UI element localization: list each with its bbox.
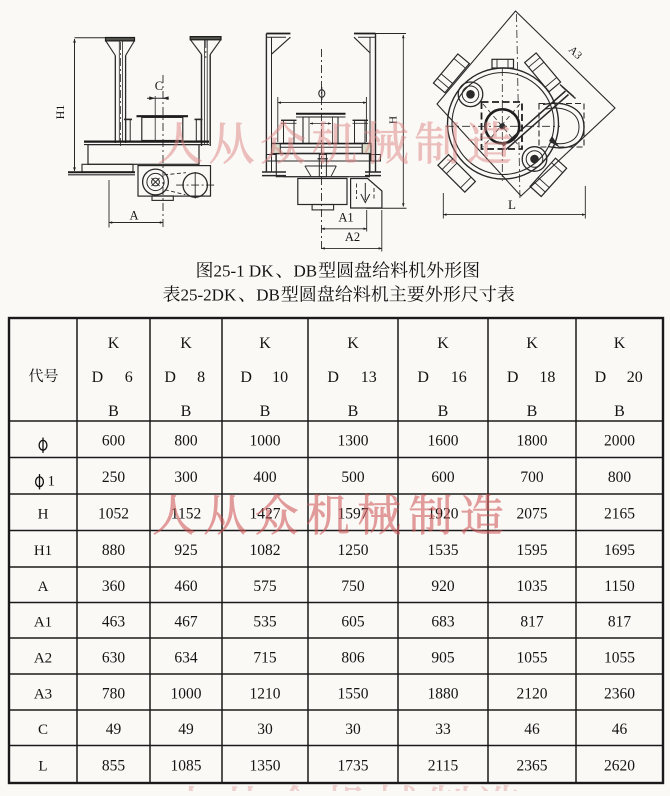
svg-text:30: 30 <box>257 721 273 738</box>
svg-text:2120: 2120 <box>517 685 548 702</box>
svg-text:750: 750 <box>341 578 365 595</box>
svg-text:13: 13 <box>361 369 377 386</box>
svg-text:46: 46 <box>612 721 628 738</box>
svg-text:B: B <box>438 403 449 420</box>
svg-text:360: 360 <box>102 578 126 595</box>
svg-text:1350: 1350 <box>250 758 281 775</box>
svg-text:806: 806 <box>341 649 365 666</box>
svg-text:2360: 2360 <box>604 685 635 702</box>
svg-text:1055: 1055 <box>604 649 635 666</box>
svg-text:1: 1 <box>48 474 56 490</box>
svg-text:250: 250 <box>102 469 126 486</box>
svg-text:1052: 1052 <box>98 506 129 523</box>
svg-text:400: 400 <box>253 469 277 486</box>
svg-text:600: 600 <box>431 469 455 486</box>
svg-text:780: 780 <box>102 685 126 702</box>
svg-text:700: 700 <box>520 469 544 486</box>
svg-text:634: 634 <box>174 649 198 666</box>
svg-text:49: 49 <box>106 721 122 738</box>
svg-text:800: 800 <box>174 433 198 450</box>
svg-text:B: B <box>348 403 359 420</box>
svg-text:1880: 1880 <box>428 685 459 702</box>
svg-text:1535: 1535 <box>428 542 459 559</box>
svg-text:1210: 1210 <box>250 685 281 702</box>
svg-text:1000: 1000 <box>250 433 281 450</box>
svg-text:575: 575 <box>253 578 277 595</box>
svg-text:1035: 1035 <box>517 578 548 595</box>
svg-text:683: 683 <box>431 614 455 631</box>
svg-text:1082: 1082 <box>250 542 281 559</box>
svg-text:16: 16 <box>451 369 467 386</box>
svg-text:467: 467 <box>174 614 198 631</box>
svg-text:6: 6 <box>125 369 133 386</box>
svg-text:880: 880 <box>102 542 126 559</box>
svg-text:D: D <box>327 369 339 386</box>
svg-text:DB: DB <box>294 262 318 281</box>
svg-text:905: 905 <box>431 649 455 666</box>
svg-text:10: 10 <box>272 369 288 386</box>
svg-text:1595: 1595 <box>517 542 548 559</box>
svg-text:L: L <box>508 197 516 212</box>
svg-text:A1: A1 <box>338 211 353 225</box>
svg-text:1000: 1000 <box>171 685 202 702</box>
svg-text:DB: DB <box>256 286 280 305</box>
svg-text:600: 600 <box>102 433 126 450</box>
svg-text:535: 535 <box>253 614 277 631</box>
svg-text:D: D <box>417 369 429 386</box>
svg-text:K: K <box>347 335 359 352</box>
svg-text:20: 20 <box>627 369 643 386</box>
svg-text:33: 33 <box>435 721 451 738</box>
svg-text:1600: 1600 <box>428 433 459 450</box>
svg-text:855: 855 <box>102 758 126 775</box>
svg-text:920: 920 <box>431 578 455 595</box>
svg-text:D: D <box>595 369 607 386</box>
svg-text:B: B <box>108 403 119 420</box>
svg-text:C: C <box>155 79 163 93</box>
svg-text:B: B <box>527 403 538 420</box>
svg-text:460: 460 <box>174 578 198 595</box>
svg-text:A: A <box>38 579 49 595</box>
svg-text:A2: A2 <box>34 650 52 666</box>
svg-text:1800: 1800 <box>517 433 548 450</box>
svg-text:1300: 1300 <box>338 433 369 450</box>
svg-text:D: D <box>92 369 104 386</box>
svg-text:L: L <box>38 759 47 775</box>
svg-text:K: K <box>259 335 271 352</box>
svg-text:1550: 1550 <box>338 685 369 702</box>
svg-text:D: D <box>164 369 176 386</box>
svg-text:630: 630 <box>102 649 126 666</box>
svg-text:1695: 1695 <box>604 542 635 559</box>
svg-text:925: 925 <box>174 542 198 559</box>
svg-text:A1: A1 <box>34 615 52 631</box>
svg-text:A3: A3 <box>34 686 52 702</box>
svg-text:1250: 1250 <box>338 542 369 559</box>
svg-text:300: 300 <box>174 469 198 486</box>
svg-text:30: 30 <box>345 721 361 738</box>
svg-text:C: C <box>38 722 48 738</box>
svg-text:463: 463 <box>102 614 126 631</box>
svg-text:715: 715 <box>253 649 277 666</box>
svg-text:K: K <box>108 335 120 352</box>
svg-text:B: B <box>614 403 625 420</box>
svg-text:2620: 2620 <box>604 758 635 775</box>
svg-text:500: 500 <box>341 469 365 486</box>
svg-text:49: 49 <box>178 721 194 738</box>
svg-text:1085: 1085 <box>171 758 202 775</box>
svg-text:1055: 1055 <box>517 649 548 666</box>
svg-text:H1: H1 <box>34 543 52 559</box>
svg-text:817: 817 <box>520 614 544 631</box>
svg-text:K: K <box>526 335 538 352</box>
svg-text:25-2DK: 25-2DK <box>181 286 237 305</box>
svg-text:2115: 2115 <box>428 758 459 775</box>
svg-text:2000: 2000 <box>604 433 635 450</box>
svg-text:D: D <box>507 369 519 386</box>
svg-text:605: 605 <box>341 614 365 631</box>
svg-text:8: 8 <box>197 369 205 386</box>
svg-text:D: D <box>240 369 252 386</box>
svg-text:817: 817 <box>608 614 632 631</box>
svg-text:18: 18 <box>539 369 555 386</box>
svg-text:K: K <box>437 335 449 352</box>
svg-text:A: A <box>129 209 138 223</box>
svg-text:1735: 1735 <box>338 758 369 775</box>
svg-text:800: 800 <box>608 469 632 486</box>
svg-text:2075: 2075 <box>517 506 548 523</box>
svg-text:H1: H1 <box>53 105 67 120</box>
svg-text:46: 46 <box>524 721 540 738</box>
svg-text:25-1 DK: 25-1 DK <box>214 262 275 281</box>
svg-text:K: K <box>614 335 626 352</box>
svg-text:B: B <box>260 403 271 420</box>
svg-text:K: K <box>180 335 192 352</box>
svg-text:B: B <box>181 403 192 420</box>
svg-text:1150: 1150 <box>604 578 635 595</box>
svg-text:2365: 2365 <box>517 758 548 775</box>
svg-text:H: H <box>38 507 49 523</box>
svg-text:A2: A2 <box>345 230 360 244</box>
svg-text:2165: 2165 <box>604 506 635 523</box>
